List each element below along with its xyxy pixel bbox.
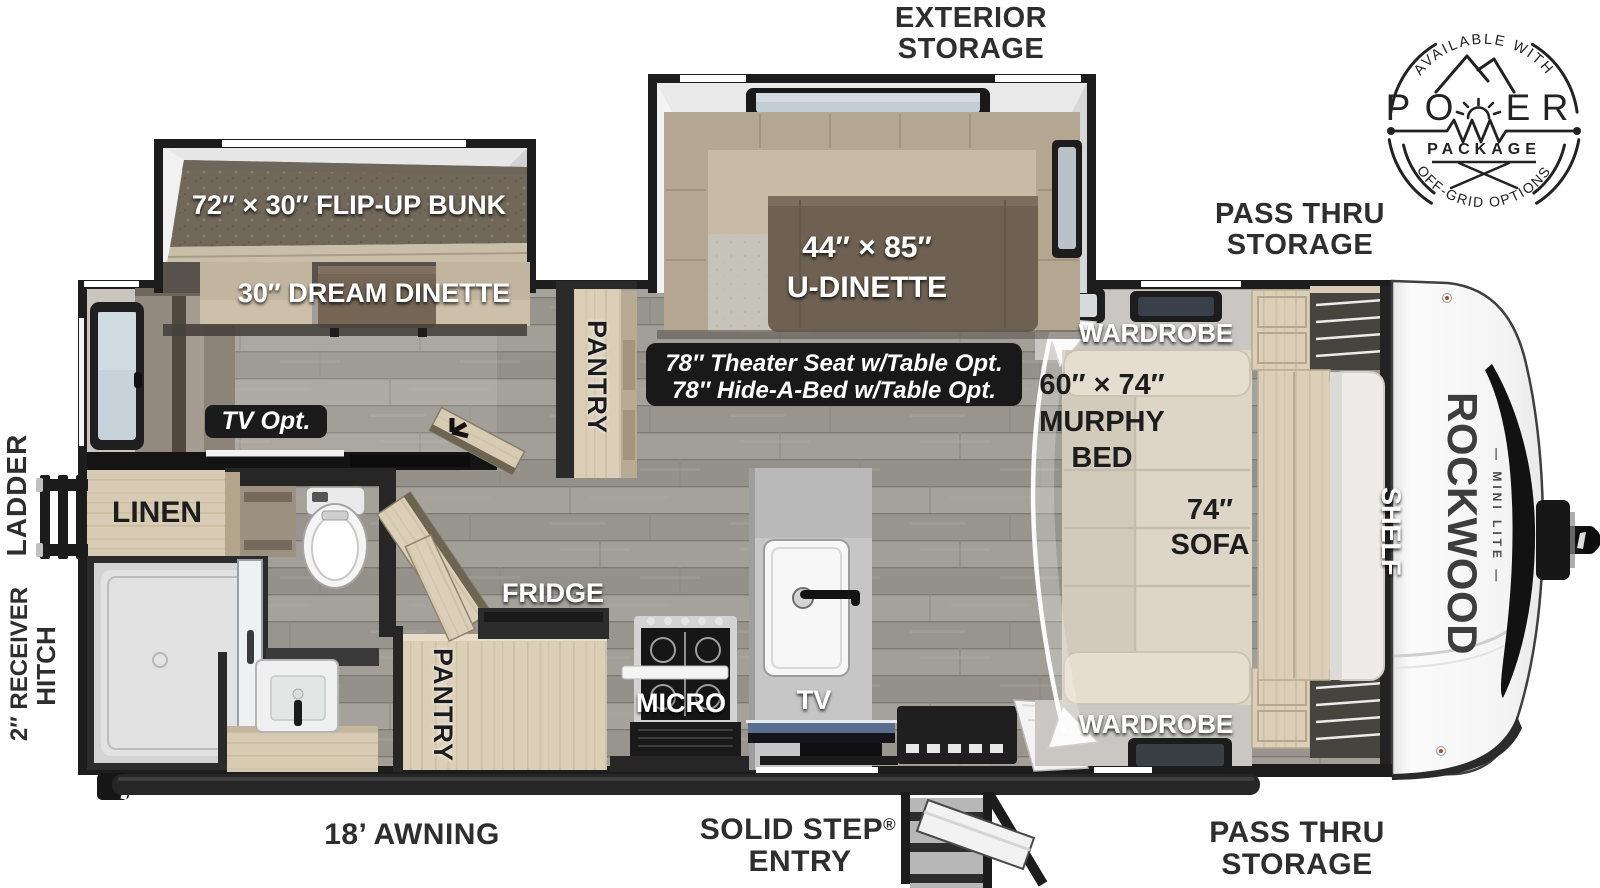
svg-text:E: E — [1506, 87, 1531, 128]
svg-text:O: O — [1425, 87, 1454, 128]
svg-text:HITCH: HITCH — [31, 626, 61, 705]
svg-text:PASS THRU: PASS THRU — [1215, 198, 1385, 230]
svg-text:ROCKWOOD: ROCKWOOD — [1439, 392, 1486, 655]
svg-text:PASS THRU: PASS THRU — [1209, 816, 1385, 849]
svg-text:— MINI LITE —: — MINI LITE — — [1490, 448, 1504, 585]
svg-text:MURPHY: MURPHY — [1039, 406, 1165, 438]
svg-text:PANTRY: PANTRY — [582, 320, 612, 434]
svg-text:LINEN: LINEN — [112, 496, 202, 529]
svg-text:SOFA: SOFA — [1171, 529, 1250, 561]
svg-text:WARDROBE: WARDROBE — [1079, 318, 1234, 348]
svg-text:STORAGE: STORAGE — [1221, 848, 1372, 881]
svg-text:BED: BED — [1071, 442, 1132, 474]
svg-text:SOLID STEP®: SOLID STEP® — [700, 813, 896, 846]
svg-text:74″: 74″ — [1187, 494, 1233, 526]
svg-text:PANTRY: PANTRY — [428, 648, 458, 762]
svg-text:78″ Hide-A-Bed w/Table Opt.: 78″ Hide-A-Bed w/Table Opt. — [672, 377, 996, 404]
svg-text:PACKAGE: PACKAGE — [1427, 141, 1541, 158]
svg-text:60″ × 74″: 60″ × 74″ — [1039, 369, 1164, 401]
svg-text:STORAGE: STORAGE — [898, 33, 1044, 65]
svg-text:SHELF: SHELF — [1376, 487, 1406, 576]
svg-text:EXTERIOR: EXTERIOR — [895, 2, 1047, 34]
svg-text:44″ × 85″: 44″ × 85″ — [802, 231, 932, 264]
svg-text:TV Opt.: TV Opt. — [222, 407, 311, 435]
svg-text:72″ × 30″ FLIP-UP BUNK: 72″ × 30″ FLIP-UP BUNK — [192, 190, 507, 220]
svg-text:MICRO: MICRO — [636, 688, 726, 718]
svg-text:2″ RECEIVER: 2″ RECEIVER — [6, 587, 33, 741]
svg-text:LADDER: LADDER — [1, 434, 32, 557]
svg-text:R: R — [1542, 87, 1569, 128]
svg-text:P: P — [1386, 87, 1411, 128]
svg-text:18’ AWNING: 18’ AWNING — [324, 818, 500, 851]
svg-text:U-DINETTE: U-DINETTE — [787, 271, 947, 304]
svg-text:78″ Theater Seat w/Table Opt.: 78″ Theater Seat w/Table Opt. — [665, 350, 1002, 377]
svg-text:TV: TV — [797, 685, 832, 715]
svg-text:STORAGE: STORAGE — [1227, 229, 1373, 261]
svg-text:FRIDGE: FRIDGE — [502, 578, 604, 608]
svg-text:WARDROBE: WARDROBE — [1079, 709, 1234, 739]
svg-text:ENTRY: ENTRY — [748, 845, 851, 878]
svg-text:30″ DREAM DINETTE: 30″ DREAM DINETTE — [238, 278, 510, 308]
